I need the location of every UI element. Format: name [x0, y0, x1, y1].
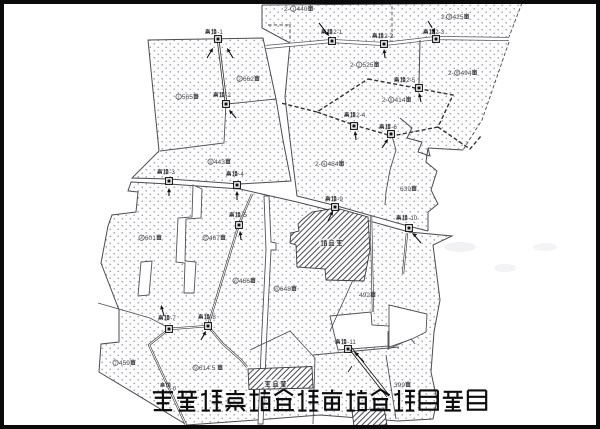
svg-text:2-: 2-: [315, 161, 321, 168]
svg-text:440: 440: [297, 6, 308, 13]
svg-text:3: 3: [209, 160, 212, 165]
svg-text:639: 639: [400, 186, 411, 193]
svg-text:414: 414: [395, 97, 406, 104]
svg-text:2-: 2-: [284, 6, 290, 13]
svg-text:425: 425: [453, 14, 464, 21]
svg-text:443: 443: [214, 159, 225, 166]
svg-text:-7: -7: [170, 315, 176, 322]
svg-text:4: 4: [140, 236, 143, 241]
svg-text:399: 399: [394, 382, 405, 389]
svg-text:494: 494: [461, 70, 472, 77]
svg-text:-10: -10: [408, 215, 418, 222]
svg-text:3: 3: [448, 15, 451, 20]
svg-text:-11: -11: [347, 339, 356, 346]
svg-text:2-: 2-: [350, 62, 356, 69]
svg-text:-2: -2: [225, 92, 231, 99]
svg-text:-9: -9: [337, 196, 343, 203]
svg-text:565: 565: [182, 94, 193, 101]
svg-text:467: 467: [209, 235, 220, 242]
svg-text:5: 5: [204, 236, 207, 241]
svg-text:2-1: 2-1: [333, 29, 343, 36]
svg-text:2-: 2-: [448, 70, 454, 77]
svg-text:1: 1: [292, 7, 295, 12]
svg-text:614.5: 614.5: [199, 365, 216, 372]
svg-text:2: 2: [238, 77, 241, 82]
svg-text:2-: 2-: [441, 14, 447, 21]
svg-text:-3: -3: [169, 169, 175, 176]
svg-text:-8: -8: [210, 314, 216, 321]
svg-text:-4: -4: [238, 171, 244, 178]
svg-text:9: 9: [194, 366, 197, 371]
svg-text:2-3: 2-3: [435, 29, 445, 36]
svg-text:4: 4: [323, 162, 326, 167]
svg-text:601: 601: [145, 235, 156, 242]
svg-text:6: 6: [390, 98, 393, 103]
svg-text:484: 484: [328, 161, 339, 168]
svg-text:-6: -6: [391, 124, 397, 131]
svg-text:2-: 2-: [382, 97, 388, 104]
svg-text:-5: -5: [241, 212, 247, 219]
svg-text:8: 8: [275, 287, 278, 292]
svg-text:2: 2: [358, 63, 361, 68]
svg-text:648: 648: [280, 286, 291, 293]
svg-text:7: 7: [114, 361, 117, 366]
svg-text:466: 466: [239, 278, 250, 285]
svg-text:2-4: 2-4: [356, 112, 366, 119]
svg-text:1: 1: [177, 95, 180, 100]
svg-text:492: 492: [359, 292, 370, 299]
svg-text:5: 5: [456, 71, 459, 76]
svg-text:2-2: 2-2: [384, 33, 394, 40]
svg-text:-1: -1: [217, 29, 223, 36]
svg-text:6: 6: [234, 279, 237, 284]
svg-text:2-5: 2-5: [406, 77, 416, 84]
svg-text:525: 525: [363, 62, 374, 69]
svg-text:459: 459: [119, 360, 130, 367]
svg-text:662: 662: [243, 76, 254, 83]
svg-text:-8: -8: [171, 386, 176, 392]
